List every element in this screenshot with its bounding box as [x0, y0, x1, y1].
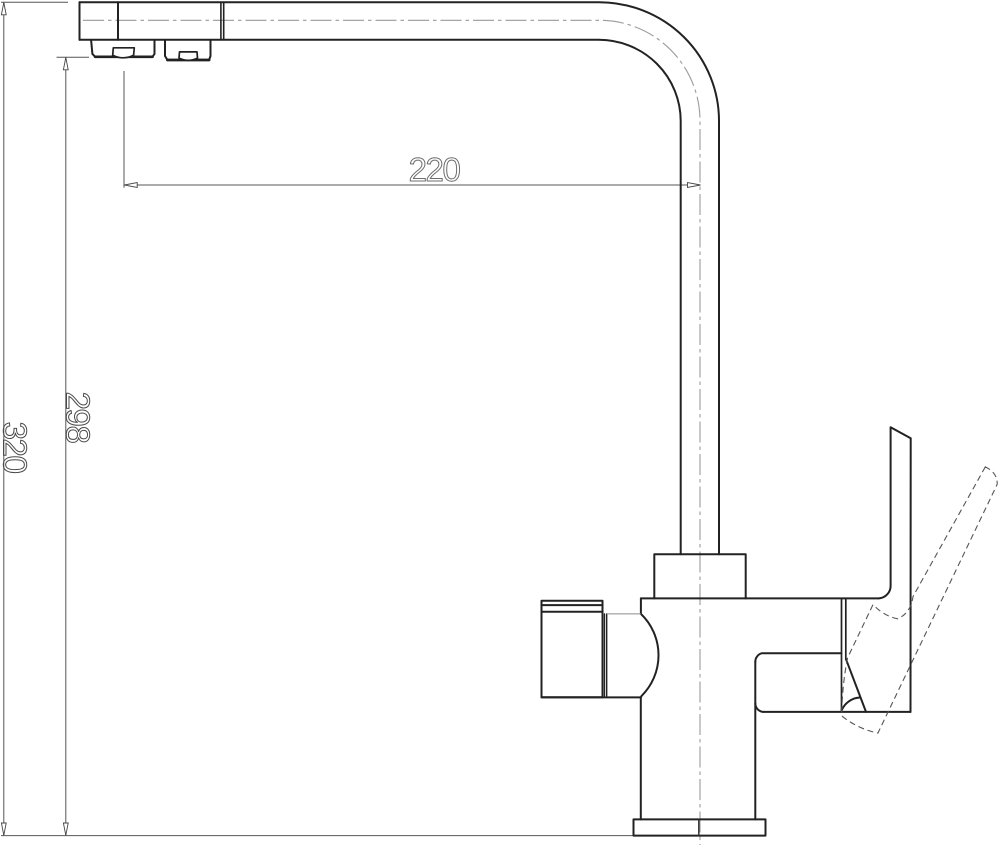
svg-text:320: 320	[0, 422, 34, 474]
svg-text:298: 298	[60, 392, 97, 443]
svg-text:220: 220	[409, 151, 461, 188]
